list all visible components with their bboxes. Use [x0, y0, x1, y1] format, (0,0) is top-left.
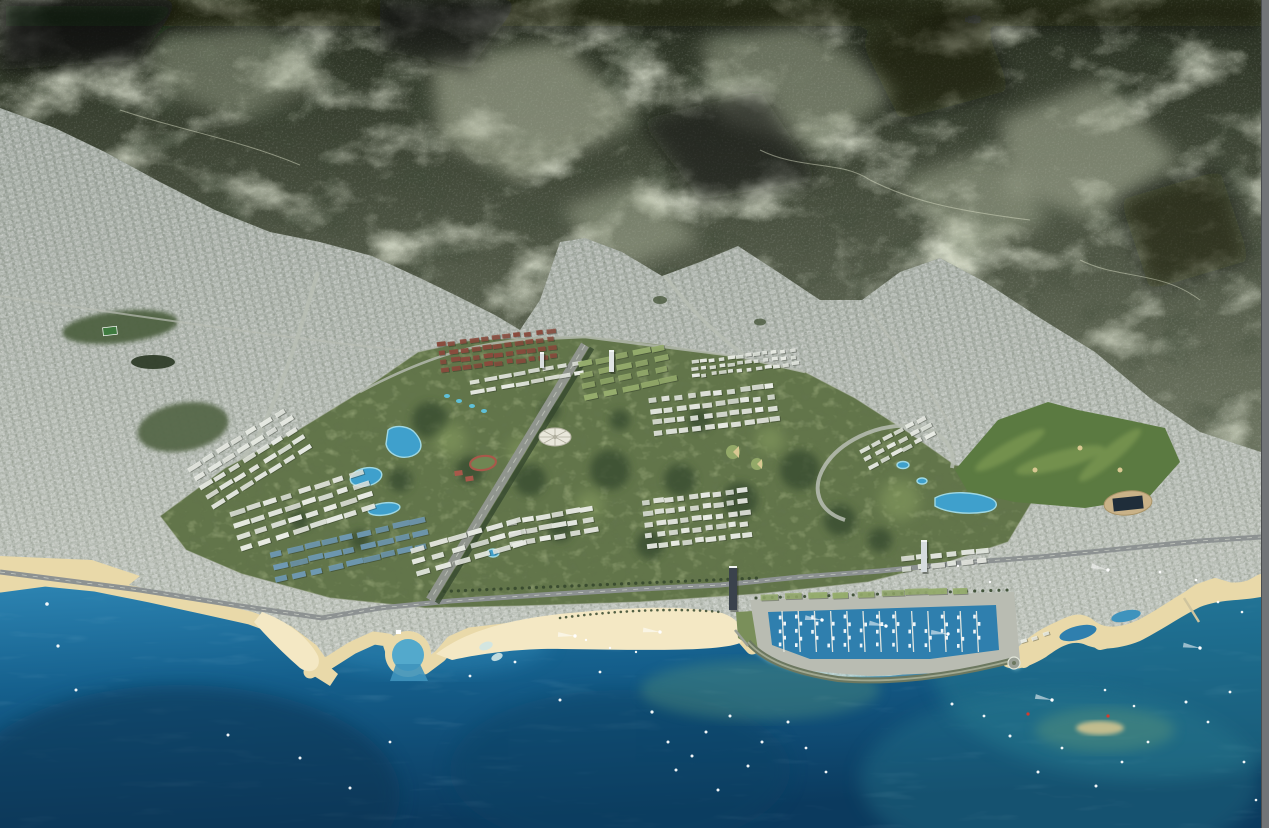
reef-islet [1076, 721, 1124, 735]
boat-dot [667, 741, 670, 744]
berthed-boat [978, 622, 981, 626]
berthed-boat [800, 637, 803, 641]
boat-dot [1121, 761, 1124, 764]
boat-dot [75, 689, 78, 692]
boat-dot [514, 661, 517, 664]
berthed-boat [941, 615, 944, 619]
boat-dot [559, 699, 562, 702]
boat-dot [1104, 689, 1107, 692]
boat-dot [787, 721, 790, 724]
berthed-boat [876, 643, 879, 647]
berthed-boat [848, 636, 851, 640]
berthed-boat [913, 622, 916, 626]
boat-dot [1133, 705, 1136, 708]
berthed-boat [795, 643, 798, 647]
berthed-boat [957, 616, 960, 620]
cove-pavilion [396, 630, 401, 634]
boat-dot [705, 731, 708, 734]
boat-dot [1195, 579, 1198, 582]
boat-dot [227, 734, 230, 737]
berthed-boat [816, 636, 819, 640]
berthed-boat [816, 622, 819, 626]
berthed-boat [957, 644, 960, 648]
berthed-boat [908, 630, 911, 634]
boat-dot [1009, 735, 1012, 738]
boat-dot [729, 715, 732, 718]
tower-roof [540, 352, 544, 354]
boat-dot [957, 565, 959, 567]
boat-dot [389, 741, 392, 744]
boat-dot [650, 710, 653, 713]
boat-dot [609, 647, 611, 649]
boat-dot [691, 755, 694, 758]
berthed-boat [925, 629, 928, 633]
berthed-boat [783, 622, 786, 626]
berthed-boat [844, 643, 847, 647]
berthed-boat [848, 622, 851, 626]
boat-dot [299, 757, 302, 760]
berthed-boat [929, 636, 932, 640]
marina-basin [768, 605, 999, 659]
highrise-tower [921, 540, 927, 572]
berthed-boat [962, 637, 965, 641]
highrise-tower [729, 566, 737, 610]
berthed-boat [800, 622, 803, 626]
berthed-boat [892, 629, 895, 633]
berthed-boat [779, 616, 782, 620]
boat-dot [45, 602, 49, 606]
boat-dot [989, 581, 991, 583]
berthed-boat [945, 623, 948, 627]
boat-dot [761, 741, 764, 744]
berthed-boat [941, 629, 944, 633]
boat-dot [717, 789, 720, 792]
boat-dot [1147, 741, 1150, 744]
aerial-render [0, 0, 1269, 828]
berthed-boat [827, 644, 830, 648]
highrise-tower [609, 350, 614, 372]
boat-dot [635, 651, 637, 653]
berthed-boat [795, 615, 798, 619]
tower-roof [729, 566, 737, 568]
boat-dot [1207, 721, 1210, 724]
boat-dot [599, 671, 602, 674]
screenshot-root [0, 0, 1269, 828]
berthed-boat [945, 636, 948, 640]
highrise-tower [540, 352, 544, 368]
stadium-field [103, 326, 118, 335]
berthed-boat [892, 615, 895, 619]
berthed-boat [876, 630, 879, 634]
boat-dot [585, 639, 587, 641]
boat-dot [1185, 701, 1188, 704]
boat-dot [1229, 691, 1232, 694]
boat-dot [983, 715, 986, 718]
berthed-boat [783, 636, 786, 640]
berthed-boat [957, 629, 960, 633]
tower-roof [921, 540, 927, 542]
berthed-boat [811, 630, 814, 634]
boat-dot [747, 765, 750, 768]
boat-dot [825, 771, 828, 774]
window-edge-strip [1261, 0, 1269, 828]
boat-dot [1037, 771, 1040, 774]
red-buoy [1106, 714, 1109, 717]
berthed-boat [860, 629, 863, 633]
berthed-boat [897, 622, 900, 626]
berthed-boat [892, 643, 895, 647]
berthed-boat [844, 629, 847, 633]
berthed-boat [973, 630, 976, 634]
boat-dot [1217, 601, 1220, 604]
tower-roof [609, 350, 614, 352]
circular-plaza [539, 428, 571, 446]
boat-dot [349, 787, 352, 790]
boat-dot [805, 747, 808, 750]
berthed-boat [860, 644, 863, 648]
boat-dot [1095, 785, 1098, 788]
red-buoy [1026, 712, 1029, 715]
boat-dot [675, 769, 678, 772]
boat-dot [1061, 747, 1064, 750]
berthed-boat [779, 643, 782, 647]
berthed-boat [978, 636, 981, 640]
boat-dot [56, 644, 59, 647]
berthed-boat [832, 622, 835, 626]
berthed-boat [925, 643, 928, 647]
berthed-boat [973, 615, 976, 619]
berthed-boat [876, 615, 879, 619]
boat-dot [1159, 571, 1162, 574]
boat-dot [1255, 799, 1258, 802]
berthed-boat [832, 636, 835, 640]
berthed-boat [779, 630, 782, 634]
berthed-boat [795, 629, 798, 633]
berthed-boat [844, 615, 847, 619]
boat-dot [951, 703, 954, 706]
berthed-boat [908, 644, 911, 648]
boat-dot [1241, 611, 1244, 614]
boat-dot [1243, 761, 1246, 764]
boat-dot [469, 675, 472, 678]
berthed-boat [864, 623, 867, 627]
